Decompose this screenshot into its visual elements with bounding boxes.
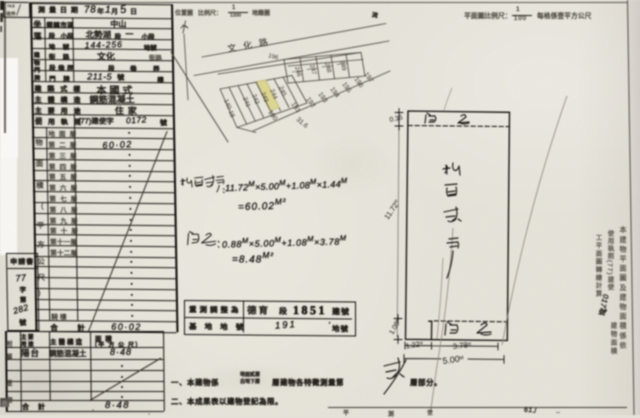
svg-text:247: 247 [308, 64, 318, 76]
svg-text:5.00M: 5.00M [442, 353, 464, 366]
svg-text:248: 248 [323, 62, 333, 74]
svg-text:249: 249 [338, 60, 348, 72]
svg-text:246: 246 [293, 66, 303, 78]
svg-text:3.78M: 3.78M [452, 340, 471, 351]
svg-text:140-18: 140-18 [222, 98, 236, 119]
svg-text:196: 196 [352, 76, 364, 89]
svg-text:241: 241 [241, 96, 252, 109]
svg-text:1.22M: 1.22M [405, 339, 424, 350]
svg-text:195: 195 [340, 81, 352, 94]
svg-text:文化路: 文化路 [226, 35, 275, 54]
svg-text:191: 191 [289, 101, 301, 114]
svg-text:1.08M: 1.08M [388, 317, 403, 336]
